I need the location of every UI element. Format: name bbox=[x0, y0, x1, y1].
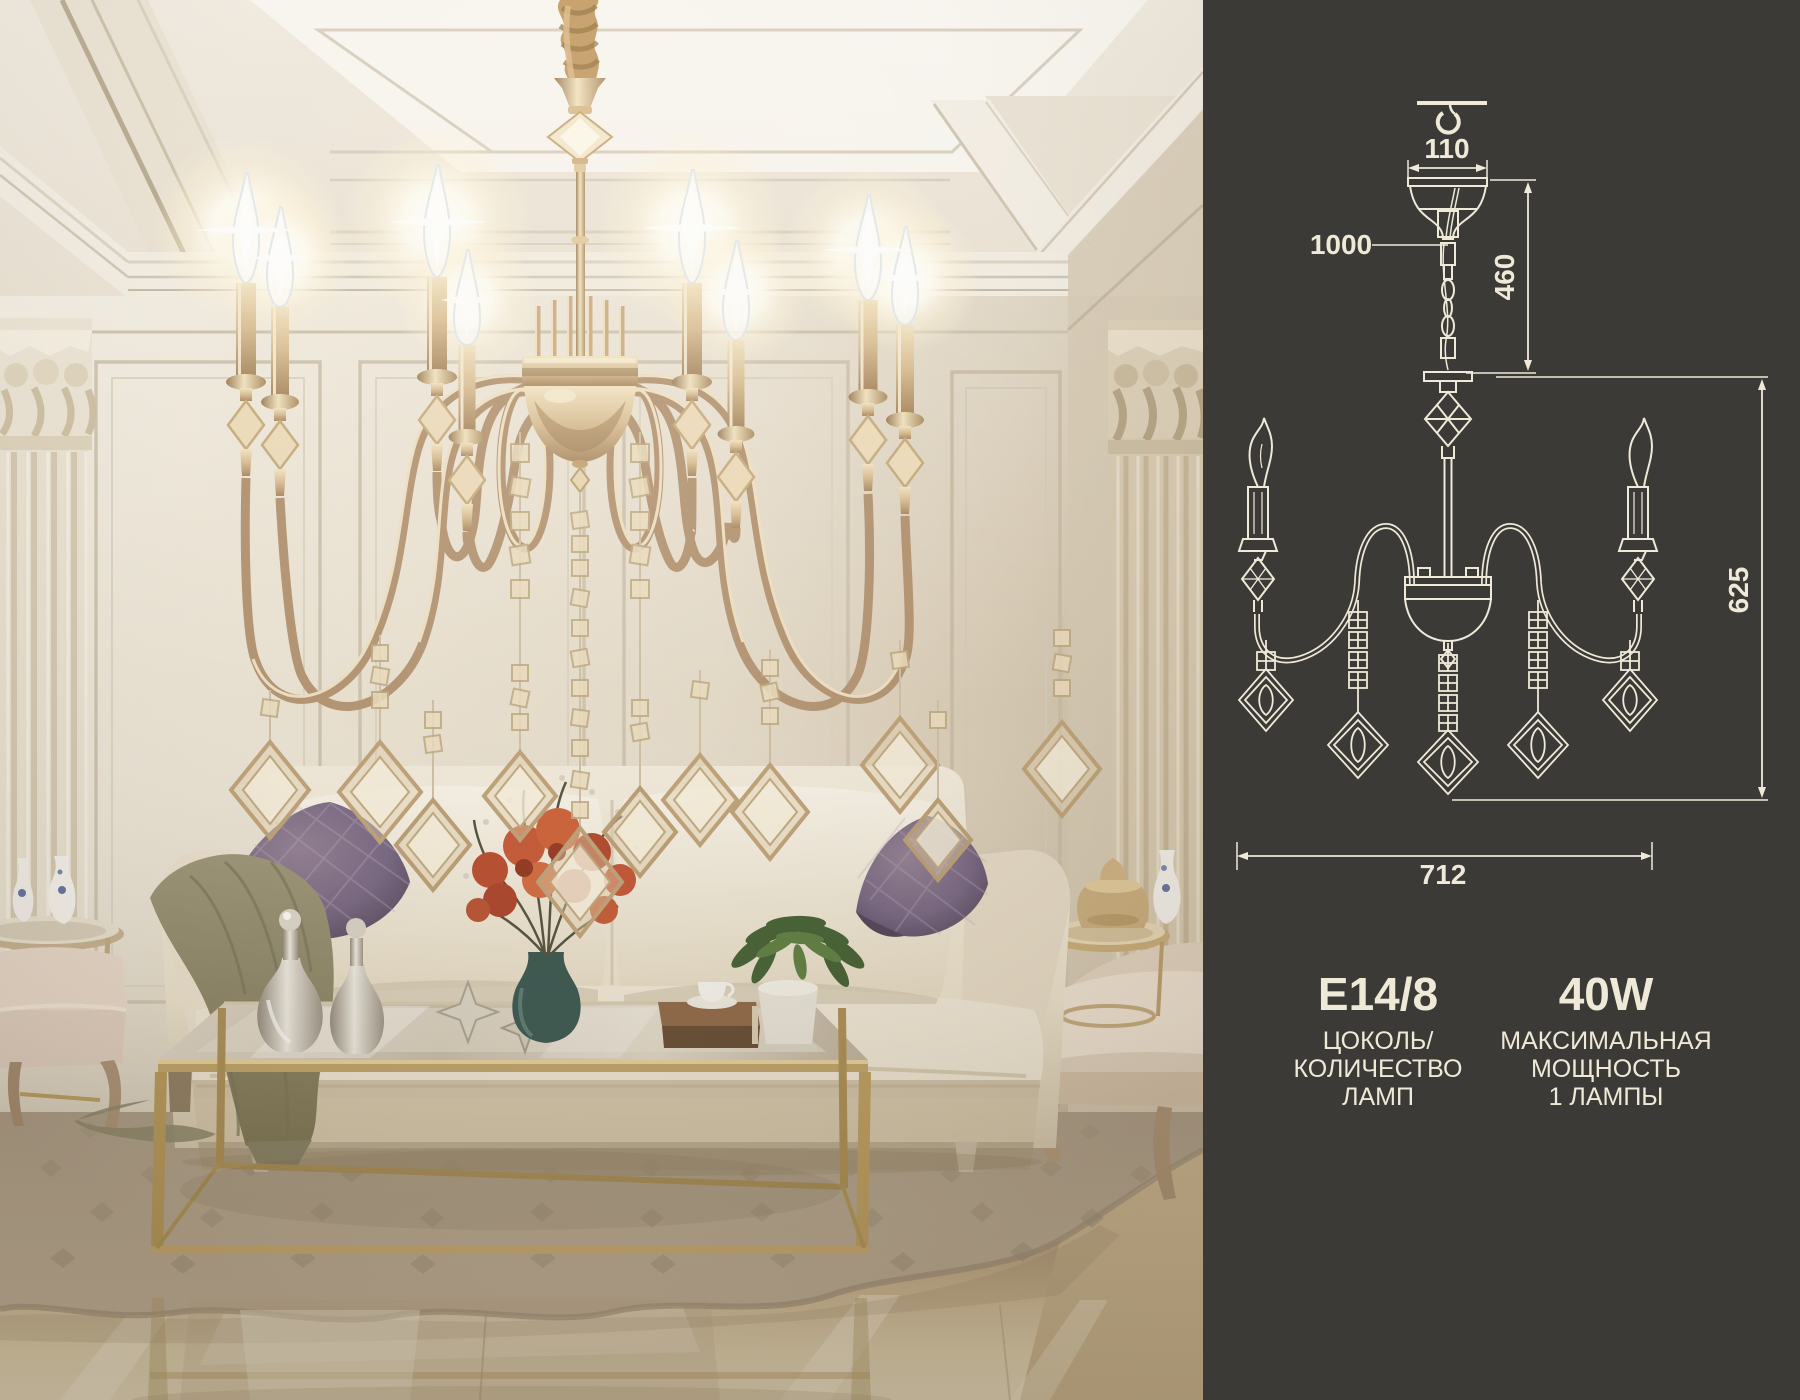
svg-text:МАКСИМАЛЬНАЯ: МАКСИМАЛЬНАЯ bbox=[1500, 1027, 1711, 1055]
svg-text:МОЩНОСТЬ: МОЩНОСТЬ bbox=[1531, 1055, 1681, 1083]
svg-text:110: 110 bbox=[1424, 133, 1469, 164]
svg-text:712: 712 bbox=[1420, 859, 1467, 890]
svg-text:625: 625 bbox=[1723, 567, 1754, 614]
svg-text:E14/8: E14/8 bbox=[1318, 968, 1438, 1020]
svg-text:40W: 40W bbox=[1559, 968, 1654, 1020]
svg-text:ЛАМП: ЛАМП bbox=[1342, 1083, 1414, 1111]
svg-text:1000: 1000 bbox=[1310, 229, 1372, 260]
svg-text:460: 460 bbox=[1489, 254, 1520, 301]
svg-text:1 ЛАМПЫ: 1 ЛАМПЫ bbox=[1549, 1083, 1664, 1111]
svg-text:КОЛИЧЕСТВО: КОЛИЧЕСТВО bbox=[1294, 1055, 1463, 1083]
svg-text:ЦОКОЛЬ/: ЦОКОЛЬ/ bbox=[1323, 1027, 1434, 1055]
